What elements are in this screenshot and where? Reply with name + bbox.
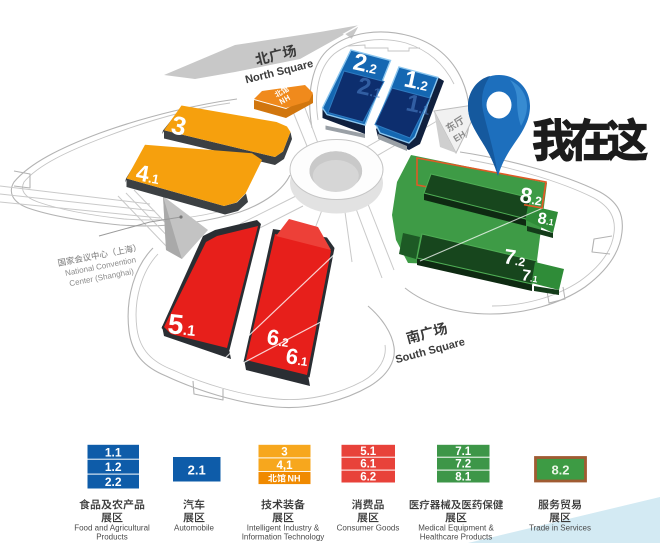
svg-text:4,1: 4,1 (277, 460, 294, 472)
svg-text:5.1: 5.1 (360, 446, 377, 458)
svg-text:1.2: 1.2 (105, 460, 122, 474)
svg-text:Food and Agricultural: Food and Agricultural (74, 524, 150, 533)
svg-text:6.2: 6.2 (360, 472, 376, 484)
svg-text:Trade in Services: Trade in Services (529, 524, 591, 533)
svg-text:1.1: 1.1 (105, 445, 122, 459)
svg-text:2.2: 2.2 (105, 475, 122, 489)
svg-text:7.1: 7.1 (455, 446, 472, 458)
svg-text:3: 3 (281, 446, 287, 458)
svg-text:Products: Products (96, 533, 128, 542)
svg-text:Consumer Goods: Consumer Goods (337, 524, 400, 533)
svg-text:7.2: 7.2 (455, 459, 471, 471)
svg-text:Automobile: Automobile (174, 524, 215, 533)
svg-text:Medical Equipment &: Medical Equipment & (418, 524, 494, 533)
svg-text:2.1: 2.1 (188, 463, 206, 478)
svg-text:8.2: 8.2 (551, 463, 569, 478)
svg-text:Intelligent Industry &: Intelligent Industry & (247, 524, 320, 533)
svg-text:8.1: 8.1 (455, 472, 472, 484)
svg-text:South Square: South Square (394, 336, 466, 366)
svg-text:Information Technology: Information Technology (242, 533, 325, 542)
svg-text:NH: NH (288, 474, 301, 484)
svg-text:Healthcare Products: Healthcare Products (420, 533, 492, 542)
svg-text:6.1: 6.1 (360, 459, 377, 471)
